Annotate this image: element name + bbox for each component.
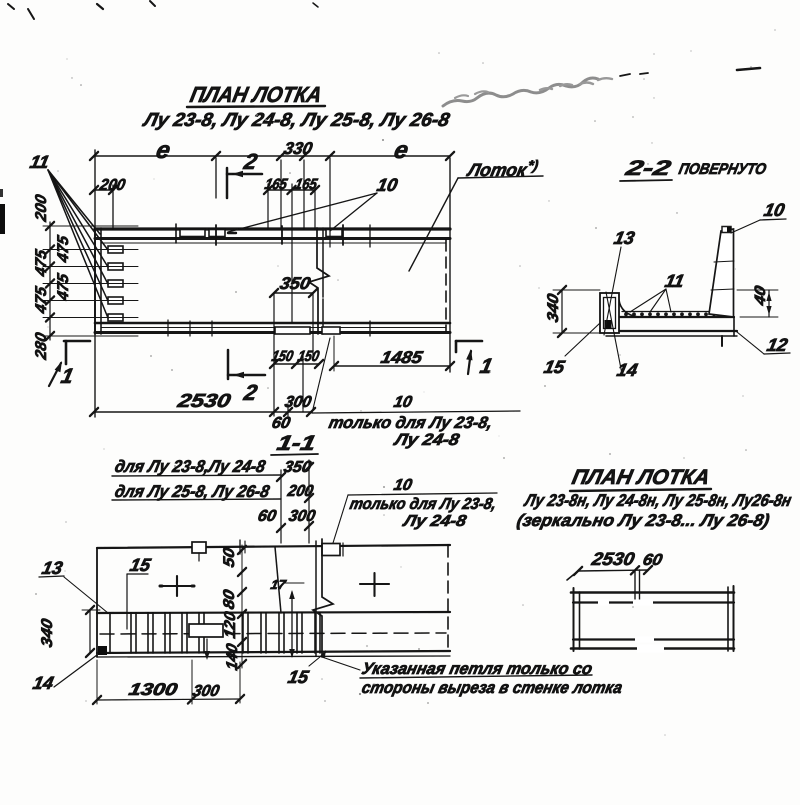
svg-text:2530: 2530 [589, 549, 636, 569]
svg-text:13: 13 [612, 228, 636, 248]
svg-text:1485: 1485 [379, 347, 425, 367]
svg-text:1300: 1300 [127, 679, 180, 699]
svg-text:Лу 23-8н, Лу 24-8н, Лу 25-8н,: Лу 23-8н, Лу 24-8н, Лу 25-8н, Лу26-8н [521, 490, 793, 510]
svg-text:для Лу 25-8, Лу 26-8: для Лу 25-8, Лу 26-8 [113, 481, 272, 501]
svg-text:ПЛАН ЛОТКА: ПЛАН ЛОТКА [570, 466, 712, 489]
svg-text:10: 10 [762, 200, 786, 220]
svg-text:120: 120 [222, 610, 239, 640]
svg-text:12: 12 [765, 335, 789, 355]
svg-text:340: 340 [545, 292, 562, 324]
svg-text:для Лу 23-8,Лу 24-8: для Лу 23-8,Лу 24-8 [113, 456, 268, 476]
svg-text:стороны выреза в стенке лотка: стороны выреза в стенке лотка [360, 678, 624, 697]
svg-text:14: 14 [615, 360, 639, 380]
svg-text:14: 14 [31, 673, 55, 693]
svg-text:150: 150 [296, 348, 321, 365]
svg-text:60: 60 [256, 507, 278, 525]
svg-text:2-2: 2-2 [623, 157, 674, 180]
svg-text:475: 475 [33, 285, 50, 316]
svg-text:10: 10 [392, 393, 414, 411]
svg-text:1-1: 1-1 [275, 432, 318, 455]
svg-text:ПОВЕРНУТО: ПОВЕРНУТО [677, 161, 768, 178]
svg-text:200: 200 [97, 176, 127, 194]
svg-text:Лу 24-8: Лу 24-8 [392, 430, 462, 449]
svg-text:350: 350 [278, 273, 313, 293]
svg-text:13: 13 [40, 558, 64, 578]
svg-text:(зеркально Лу 23-8... Лу 26-8): (зеркально Лу 23-8... Лу 26-8) [515, 510, 771, 530]
svg-text:Лу 24-8: Лу 24-8 [401, 512, 468, 530]
svg-text:280: 280 [33, 331, 50, 362]
svg-text:165: 165 [263, 176, 289, 193]
svg-text:60: 60 [270, 414, 292, 432]
svg-text:200: 200 [33, 193, 50, 224]
svg-text:150: 150 [270, 348, 295, 365]
svg-text:10: 10 [392, 476, 414, 494]
svg-text:475: 475 [55, 234, 72, 265]
svg-text:300: 300 [191, 682, 221, 700]
svg-text:50: 50 [221, 546, 238, 569]
svg-text:Лу 23-8, Лу 24-8, Лу 25-8, Лу: Лу 23-8, Лу 24-8, Лу 25-8, Лу 26-8 [140, 110, 452, 131]
svg-text:330: 330 [282, 138, 315, 158]
svg-text:только для Лу 23-8,: только для Лу 23-8, [327, 413, 494, 432]
svg-text:только для Лу 23-8,: только для Лу 23-8, [348, 495, 498, 513]
svg-text:300: 300 [283, 393, 313, 411]
svg-text:340: 340 [39, 617, 56, 649]
svg-text:ПЛАН ЛОТКА: ПЛАН ЛОТКА [188, 82, 324, 107]
svg-text:10: 10 [375, 175, 399, 195]
svg-text:60: 60 [641, 551, 664, 569]
svg-text:80: 80 [221, 588, 238, 611]
svg-text:2530: 2530 [175, 391, 233, 412]
svg-text:475: 475 [55, 272, 72, 303]
svg-text:475: 475 [33, 248, 50, 279]
